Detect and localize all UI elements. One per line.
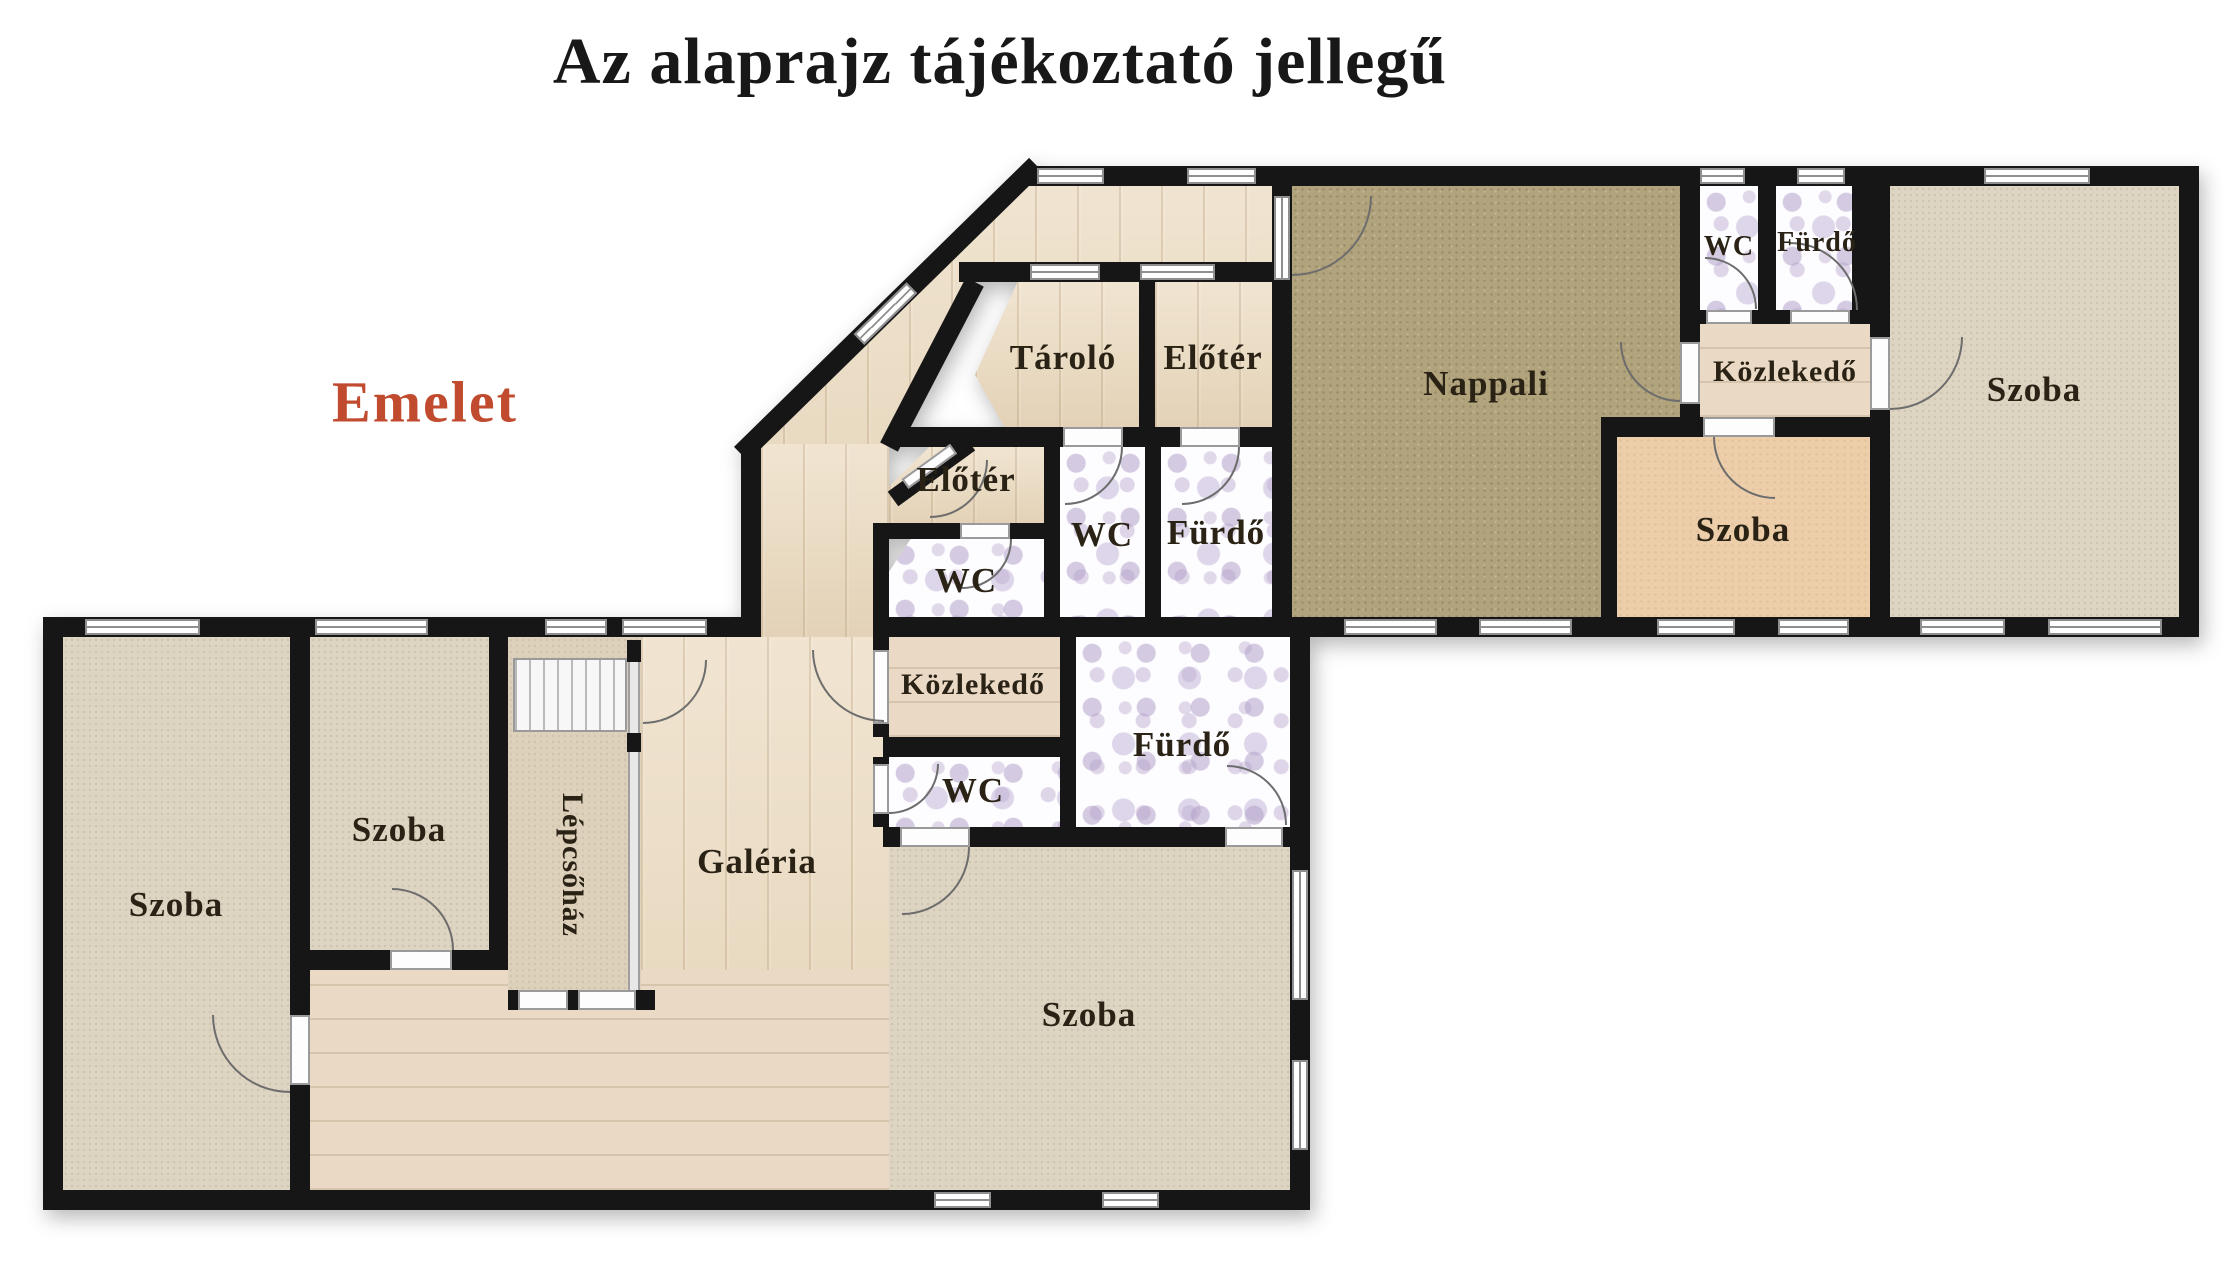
room-label-wc-lower: WC (942, 771, 1004, 811)
room-label-szoba-right: Szoba (1987, 370, 2081, 410)
room-label-galeria: Galéria (697, 842, 817, 882)
door-opening (290, 1015, 310, 1085)
wall-tarolo-top (959, 262, 1292, 282)
door-opening (390, 950, 452, 970)
window (622, 619, 707, 635)
window (1102, 1192, 1159, 1208)
door-opening (873, 764, 889, 814)
rail-post (627, 733, 641, 752)
wall-corridor-left (741, 444, 761, 637)
window (315, 619, 428, 635)
wall-wc-furdo-divider (1145, 447, 1161, 617)
room-label-nappali: Nappali (1423, 364, 1549, 404)
stairs (513, 658, 627, 732)
room-label-furdo-mid: Fürdő (1167, 513, 1265, 553)
window (1292, 870, 1308, 1000)
corridor-floor (761, 444, 889, 637)
door-opening (578, 990, 636, 1010)
wall-szoba2-right (489, 637, 508, 950)
window (1187, 168, 1256, 184)
room-label-szoba-left2: Szoba (352, 810, 446, 850)
window (934, 1192, 991, 1208)
room-label-tarolo: Tároló (1010, 338, 1116, 378)
window (85, 619, 200, 635)
stair-railing (628, 645, 640, 990)
room-label-eloter-upper: Előtér (1163, 338, 1262, 378)
room-label-szoba-bottom: Szoba (1042, 995, 1136, 1035)
window (1037, 168, 1104, 184)
door-opening (900, 827, 970, 847)
window (1984, 168, 2090, 184)
door-opening (1180, 427, 1240, 447)
wall-szoba-mid-left (1601, 417, 1617, 637)
room-label-eloter-lower: Előtér (916, 460, 1015, 500)
window (1657, 619, 1735, 635)
rail-post (627, 640, 641, 662)
window (1479, 619, 1572, 635)
window (1292, 1060, 1308, 1150)
wall-left (43, 617, 63, 1210)
door-opening (1680, 342, 1700, 404)
wall-wc-eloter-left (873, 523, 889, 637)
wall-right (2179, 166, 2199, 637)
door-frame (1030, 264, 1100, 280)
door-opening (1706, 310, 1752, 324)
room-label-furdo-right: Fürdő (1777, 227, 1857, 259)
wall-tarolo-divider (1139, 282, 1155, 427)
door-opening (1870, 337, 1890, 410)
room-label-szoba-middle: Szoba (1696, 510, 1790, 550)
door-opening (1063, 427, 1123, 447)
room-label-kozlekedo-lower: Közlekedő (901, 668, 1045, 702)
floor-plan-page: Az alaprajz tájékoztató jellegű Emelet (0, 0, 2230, 1280)
window (2048, 619, 2162, 635)
window (1797, 168, 1845, 184)
room-label-kozlekedo-right: Közlekedő (1713, 355, 1857, 389)
door-opening (1225, 827, 1283, 847)
door-opening (518, 990, 568, 1010)
door-opening (1790, 310, 1850, 324)
door-opening (1703, 417, 1775, 437)
room-label-szoba-left: Szoba (129, 885, 223, 925)
door-opening (960, 523, 1010, 539)
door-frame (1140, 264, 1215, 280)
wall-kozl-furdo-divider (1060, 637, 1076, 827)
floor-plan: Tároló Előtér Előtér WC Fürdő WC Nappali… (0, 0, 2230, 1280)
room-label-wc-right: WC (1704, 231, 1754, 263)
window (1274, 196, 1290, 280)
room-label-lepcsohaz: Lépcsőház (555, 793, 589, 937)
room-label-wc-mid: WC (1071, 515, 1133, 555)
wall-wc-mid-left (1044, 447, 1060, 617)
window (1778, 619, 1849, 635)
room-label-wc-eloter: WC (935, 561, 997, 601)
wall-kozl-wc-divider (883, 737, 1076, 757)
window (545, 619, 607, 635)
window (1920, 619, 2005, 635)
room-label-furdo-lower: Fürdő (1133, 725, 1231, 765)
window (1700, 168, 1745, 184)
window (1344, 619, 1437, 635)
wall-szoba-left-right (290, 637, 310, 1190)
wall-wcr-furdor-divider (1758, 176, 1776, 323)
